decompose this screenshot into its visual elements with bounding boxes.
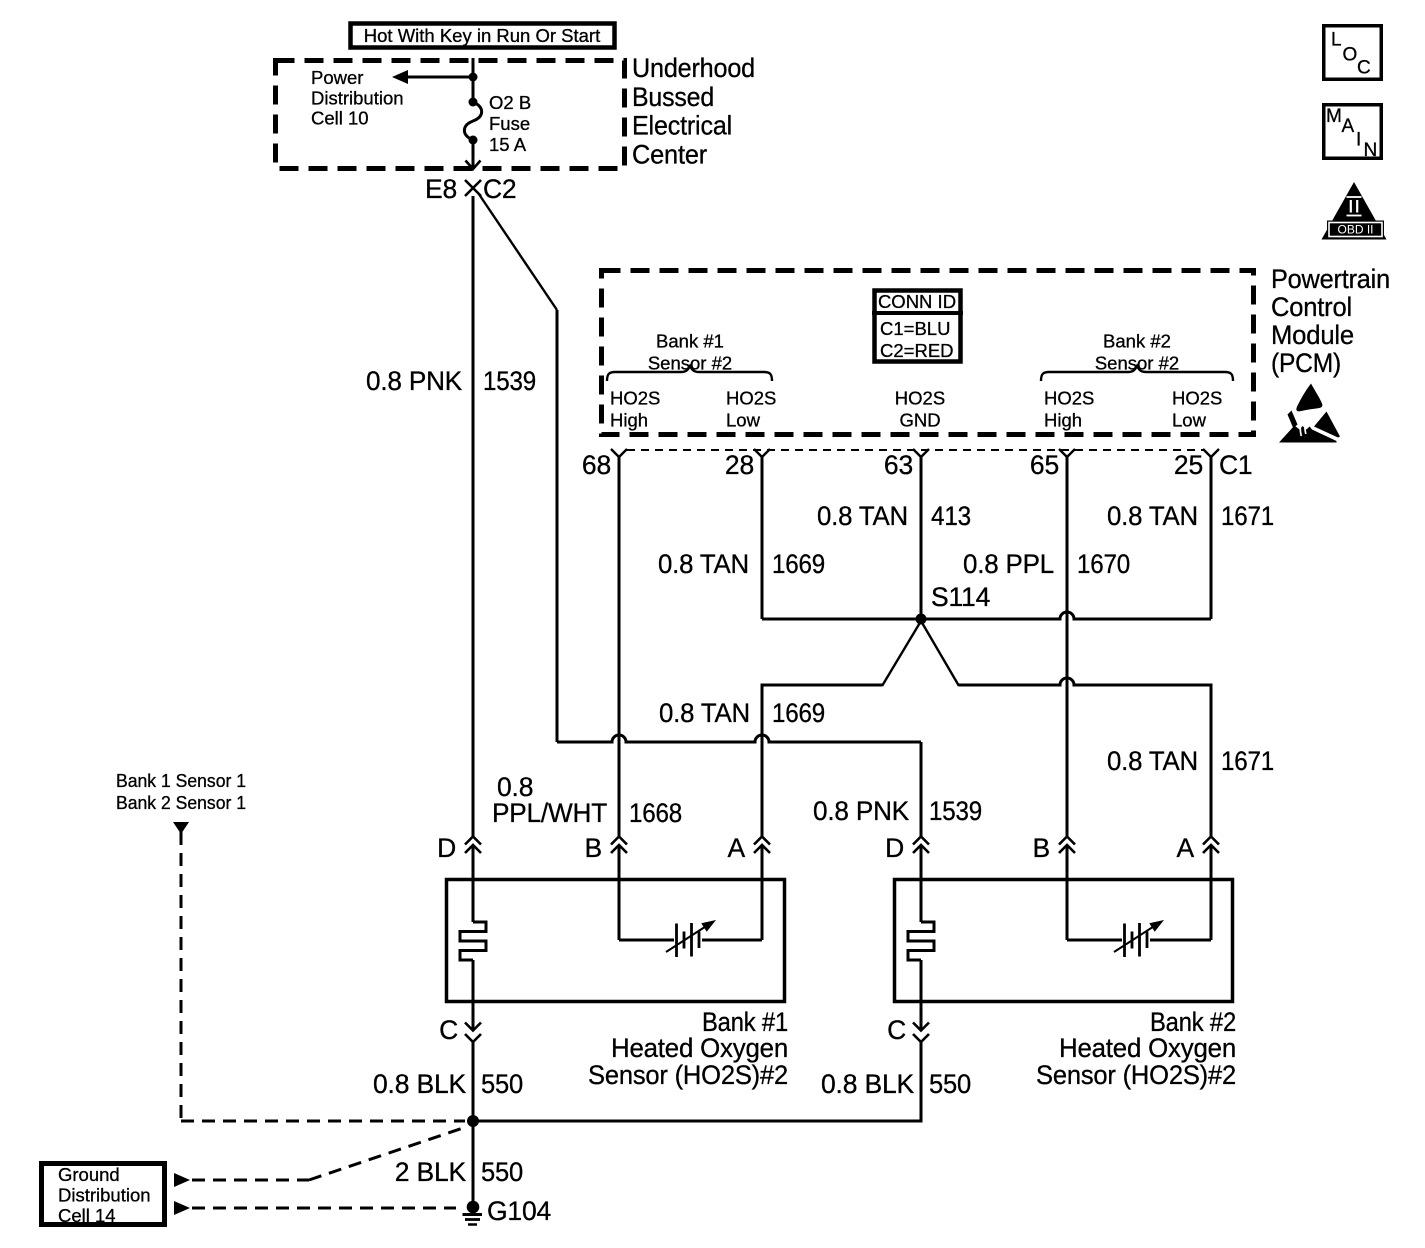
svg-text:O: O [1343,45,1358,66]
svg-text:C: C [1357,58,1371,79]
svg-text:Sensor #2: Sensor #2 [648,353,732,374]
svg-text:C2: C2 [483,174,516,204]
svg-text:0.8 TAN: 0.8 TAN [1107,501,1198,531]
svg-text:65: 65 [1030,450,1059,480]
svg-text:Ground: Ground [58,1164,120,1185]
svg-text:1539: 1539 [929,796,982,826]
svg-text:Center: Center [632,140,707,170]
svg-text:550: 550 [481,1157,523,1187]
svg-text:C2=RED: C2=RED [880,340,954,361]
svg-text:A: A [1342,116,1355,137]
svg-text:Distribution: Distribution [58,1185,151,1206]
svg-text:GND: GND [899,410,940,431]
svg-text:G104: G104 [487,1196,551,1226]
svg-text:68: 68 [582,450,611,480]
svg-text:OBD II: OBD II [1337,223,1373,237]
svg-text:Fuse: Fuse [489,113,530,134]
svg-text:D: D [885,833,904,863]
svg-text:0.8 PNK: 0.8 PNK [366,366,463,396]
svg-text:550: 550 [929,1069,971,1099]
svg-text:O2 B: O2 B [489,92,531,113]
svg-text:Electrical: Electrical [632,111,732,141]
svg-text:0.8 TAN: 0.8 TAN [659,698,750,728]
svg-text:Distribution: Distribution [311,88,404,109]
svg-text:63: 63 [884,450,913,480]
svg-text:1669: 1669 [772,549,825,579]
svg-text:C1=BLU: C1=BLU [880,318,950,339]
svg-text:High: High [1044,410,1082,431]
svg-text:0.8 TAN: 0.8 TAN [1107,746,1198,776]
svg-text:HO2S: HO2S [895,388,945,409]
svg-text:M: M [1326,106,1342,127]
svg-text:Cell 14: Cell 14 [58,1205,116,1226]
svg-text:Module: Module [1271,320,1354,350]
svg-text:1668: 1668 [629,798,682,828]
svg-text:2 BLK: 2 BLK [395,1157,467,1187]
svg-text:C: C [439,1015,458,1045]
svg-text:0.8 PPL: 0.8 PPL [963,549,1054,579]
svg-text:1670: 1670 [1077,549,1130,579]
svg-text:15 A: 15 A [489,134,527,155]
svg-text:0.8 BLK: 0.8 BLK [821,1069,915,1099]
svg-text:0.8 TAN: 0.8 TAN [658,549,749,579]
svg-text:413: 413 [931,501,971,531]
svg-text:N: N [1364,140,1378,161]
svg-text:HO2S: HO2S [1172,388,1222,409]
svg-text:(PCM): (PCM) [1271,348,1341,378]
svg-text:0.8 PNK: 0.8 PNK [813,796,910,826]
svg-text:550: 550 [481,1069,523,1099]
svg-text:Powertrain: Powertrain [1271,264,1390,294]
svg-text:B: B [1033,833,1050,863]
svg-text:0.8 TAN: 0.8 TAN [817,501,908,531]
svg-text:Power: Power [311,67,363,88]
svg-text:Cell 10: Cell 10 [311,108,369,129]
svg-text:HO2S: HO2S [726,388,776,409]
svg-text:1539: 1539 [483,366,536,396]
svg-text:Heated Oxygen: Heated Oxygen [611,1033,788,1063]
svg-text:D: D [437,833,456,863]
svg-text:Bank 2 Sensor 1: Bank 2 Sensor 1 [116,792,246,813]
svg-text:1671: 1671 [1221,501,1274,531]
svg-text:C: C [887,1015,906,1045]
svg-text:L: L [1331,30,1342,51]
svg-text:Bank 1 Sensor 1: Bank 1 Sensor 1 [116,770,246,791]
svg-text:Underhood: Underhood [632,53,755,83]
svg-text:High: High [610,410,648,431]
svg-text:1669: 1669 [772,698,825,728]
svg-text:Low: Low [726,410,761,431]
svg-text:E8: E8 [425,174,457,204]
svg-text:I: I [1356,130,1361,151]
svg-text:Bussed: Bussed [632,82,714,112]
svg-text:Heated Oxygen: Heated Oxygen [1059,1033,1236,1063]
svg-text:CONN ID: CONN ID [878,291,956,312]
svg-text:Bank #1: Bank #1 [656,331,724,352]
svg-text:Control: Control [1271,292,1352,322]
svg-text:0.8 BLK: 0.8 BLK [373,1069,467,1099]
svg-text:Low: Low [1172,410,1207,431]
svg-text:25: 25 [1174,450,1203,480]
svg-text:B: B [585,833,602,863]
svg-text:Sensor #2: Sensor #2 [1095,353,1179,374]
svg-text:S114: S114 [931,582,990,612]
svg-text:C1: C1 [1219,450,1252,480]
svg-text:28: 28 [725,450,754,480]
svg-text:Sensor (HO2S)#2: Sensor (HO2S)#2 [1036,1060,1236,1090]
svg-text:A: A [1177,833,1195,863]
svg-text:HO2S: HO2S [1044,388,1094,409]
svg-text:PPL/WHT: PPL/WHT [492,798,607,828]
svg-text:1671: 1671 [1221,746,1274,776]
svg-text:Bank #2: Bank #2 [1103,331,1171,352]
svg-text:Hot With Key in Run Or Start: Hot With Key in Run Or Start [364,25,600,46]
svg-text:Sensor (HO2S)#2: Sensor (HO2S)#2 [588,1060,788,1090]
svg-text:HO2S: HO2S [610,388,660,409]
svg-text:A: A [728,833,746,863]
